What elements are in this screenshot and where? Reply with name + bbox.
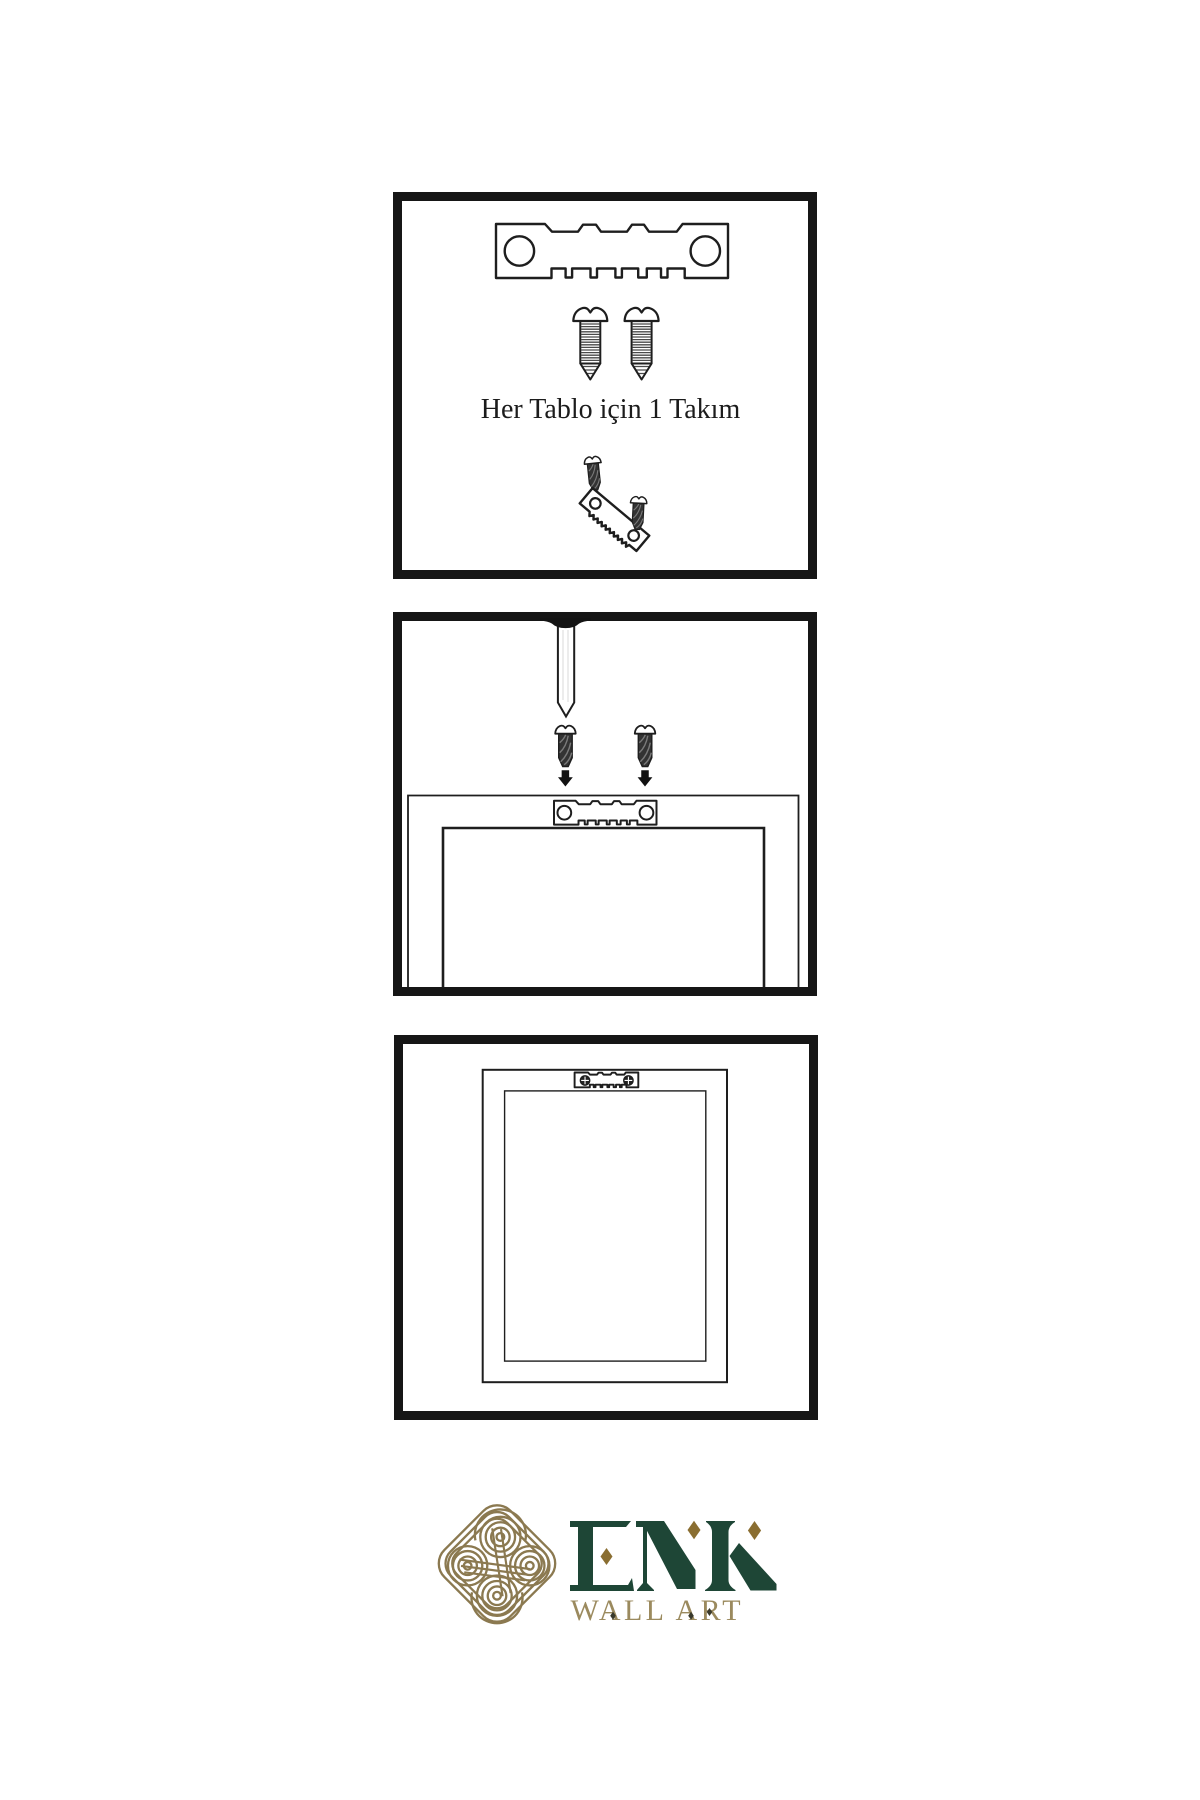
svg-text:WALL ART: WALL ART <box>571 1594 744 1627</box>
svg-text:Her Tablo için 1 Takım: Her Tablo için 1 Takım <box>481 394 741 425</box>
